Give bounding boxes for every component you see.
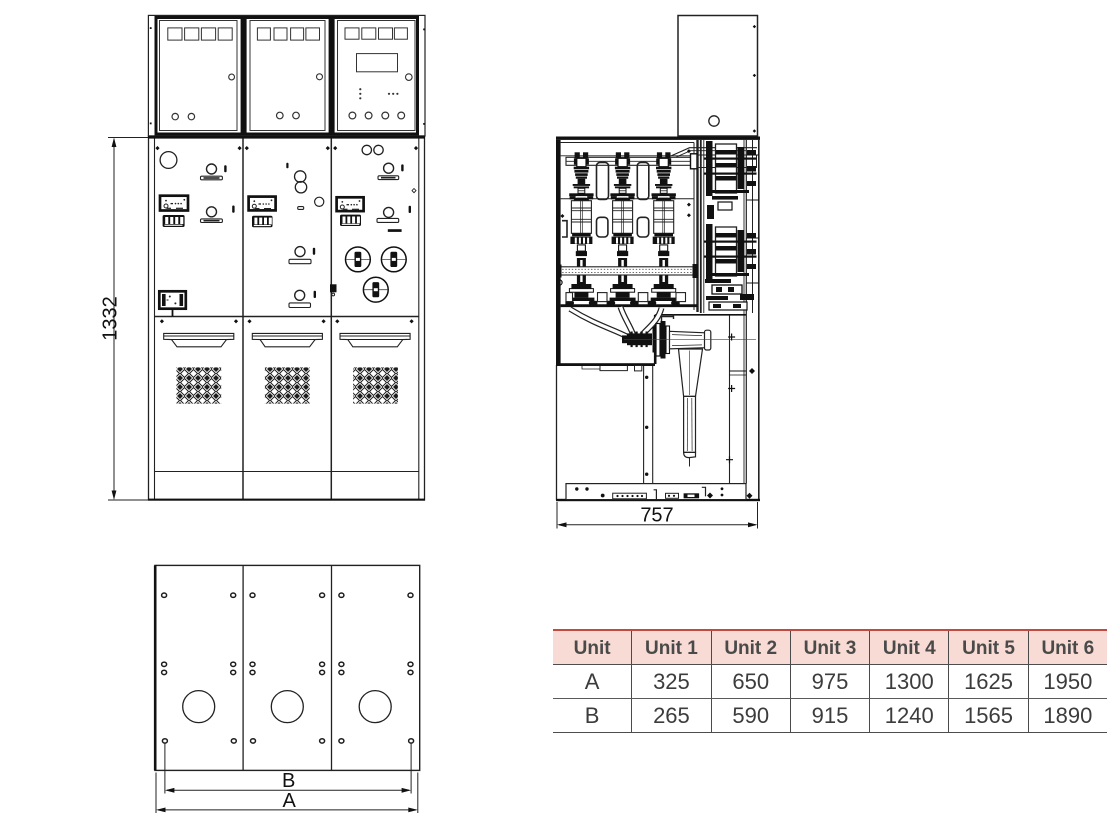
svg-text:A: A: [283, 790, 297, 812]
svg-text:1332: 1332: [100, 296, 122, 341]
svg-text:B: B: [282, 770, 295, 792]
svg-text:757: 757: [640, 505, 673, 527]
